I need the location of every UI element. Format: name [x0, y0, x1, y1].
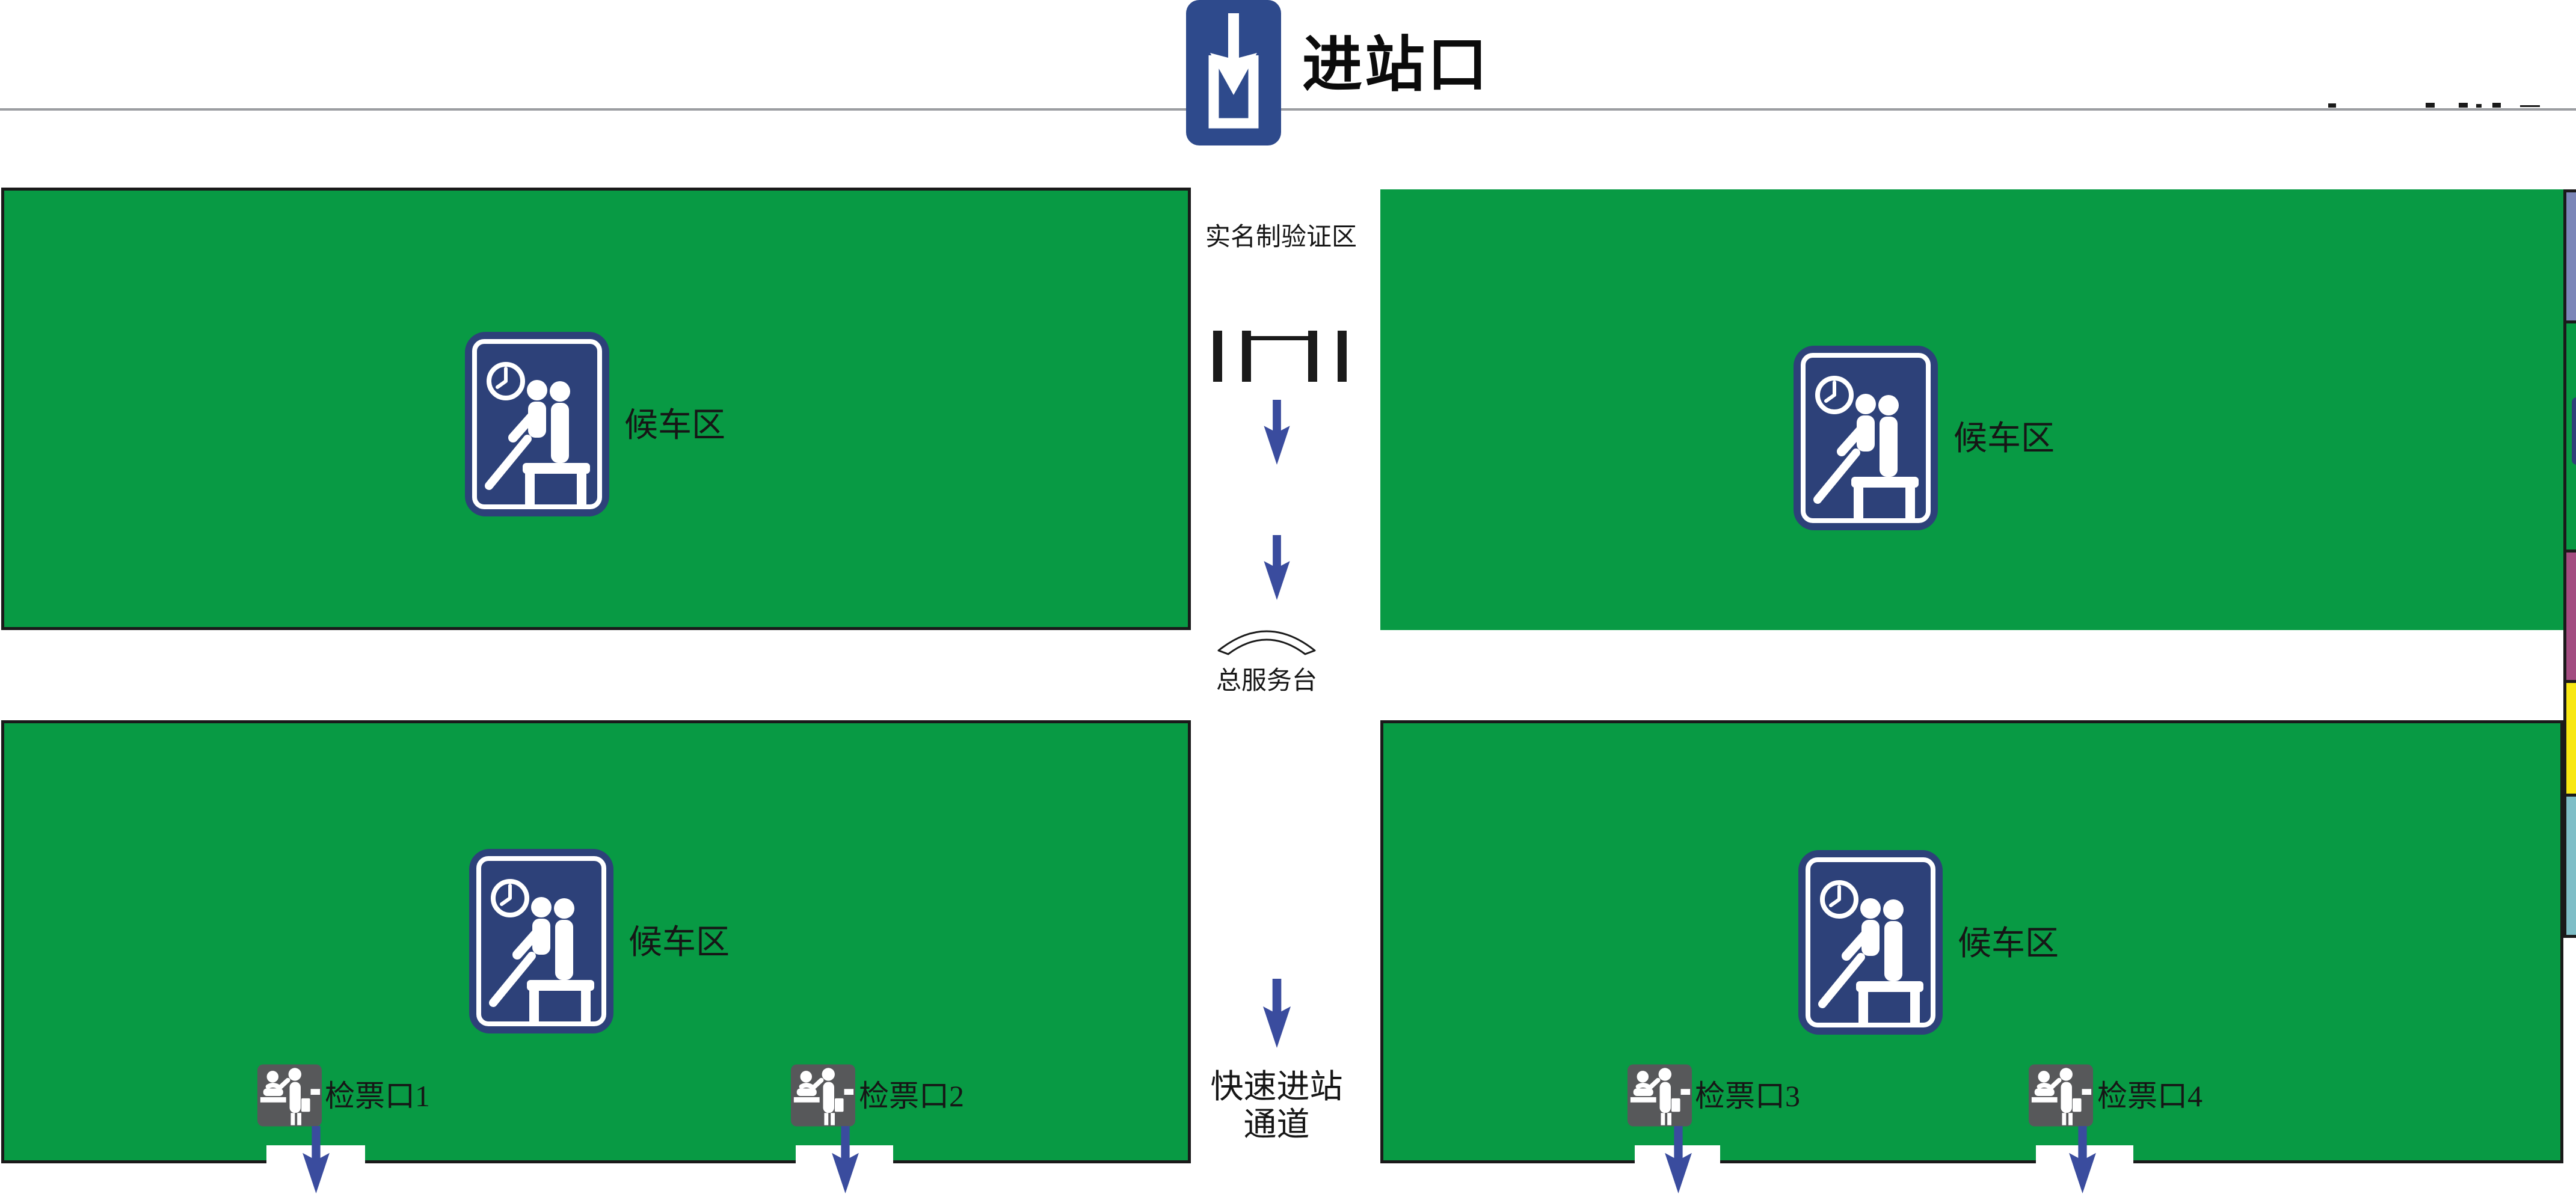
top-divider-line — [0, 108, 2576, 111]
waiting-area-label: 候车区 — [1958, 926, 2059, 963]
waiting-icon — [1798, 850, 1943, 1035]
waiting-icon — [469, 849, 613, 1033]
waiting-icon — [1794, 346, 1938, 530]
map-edge-strips — [2563, 189, 2576, 938]
clipped-text-fragment — [2476, 104, 2482, 108]
waiting-area-label: 候车区 — [624, 408, 725, 445]
service-desk-icon — [1215, 618, 1318, 655]
flow-down-arrow — [1264, 535, 1290, 600]
ticket-gate-label: 检票口4 — [2097, 1080, 2203, 1113]
ticket-gate-label: 检票口2 — [859, 1080, 964, 1113]
flow-down-arrow — [1264, 400, 1290, 465]
fast-entry-line1: 快速进站 — [1197, 1068, 1356, 1106]
waiting-area-sign — [1794, 346, 1938, 530]
clipped-text-fragment — [2520, 105, 2540, 107]
edge-strip-purple — [2563, 553, 2576, 683]
fast-entry-line2: 通道 — [1197, 1106, 1356, 1143]
clipped-sign-icon — [2572, 397, 2576, 465]
gate-exit-arrow — [832, 1126, 859, 1193]
waiting-zone-top-right — [1380, 189, 2563, 630]
waiting-area-sign — [1798, 850, 1943, 1035]
ticket-gate-icon — [2029, 1064, 2093, 1127]
flow-down-arrow — [1263, 979, 1291, 1048]
ticket-gate-icon — [1628, 1064, 1692, 1127]
station-floor-map: 进站口 候车区 — [0, 0, 2576, 1197]
waiting-area-label: 候车区 — [1954, 421, 2055, 458]
turnstile-gate-icon — [1213, 331, 1347, 382]
clipped-text-fragment — [2492, 103, 2501, 108]
gate-exit-arrow — [1665, 1126, 1692, 1193]
gate-exit-arrow — [303, 1126, 330, 1193]
edge-strip-yellow — [2563, 683, 2576, 797]
ticket-gate-label: 检票口3 — [1695, 1080, 1800, 1113]
ticket-gate-icon — [791, 1064, 855, 1127]
clipped-text-fragment — [2426, 103, 2435, 108]
entrance-icon — [1186, 0, 1281, 145]
waiting-area-sign — [469, 849, 613, 1033]
edge-strip-slate — [2563, 189, 2576, 323]
fast-entry-channel-label: 快速进站 通道 — [1197, 1068, 1356, 1144]
clipped-text-fragment — [2459, 103, 2468, 108]
edge-strip-teal — [2563, 797, 2576, 938]
clipped-text-fragment — [2328, 103, 2336, 108]
waiting-icon — [465, 332, 609, 516]
ticket-gate-icon — [257, 1064, 322, 1127]
verification-zone-label: 实名制验证区 — [1205, 224, 1357, 251]
waiting-area-sign — [465, 332, 609, 516]
ticket-gate-label: 检票口1 — [325, 1080, 430, 1113]
edge-strip-green — [2563, 323, 2576, 553]
service-desk-label: 总服务台 — [1216, 667, 1317, 695]
gate-exit-arrow — [2069, 1126, 2096, 1193]
page-title: 进站口 — [1302, 34, 1490, 97]
waiting-area-label: 候车区 — [629, 925, 730, 962]
